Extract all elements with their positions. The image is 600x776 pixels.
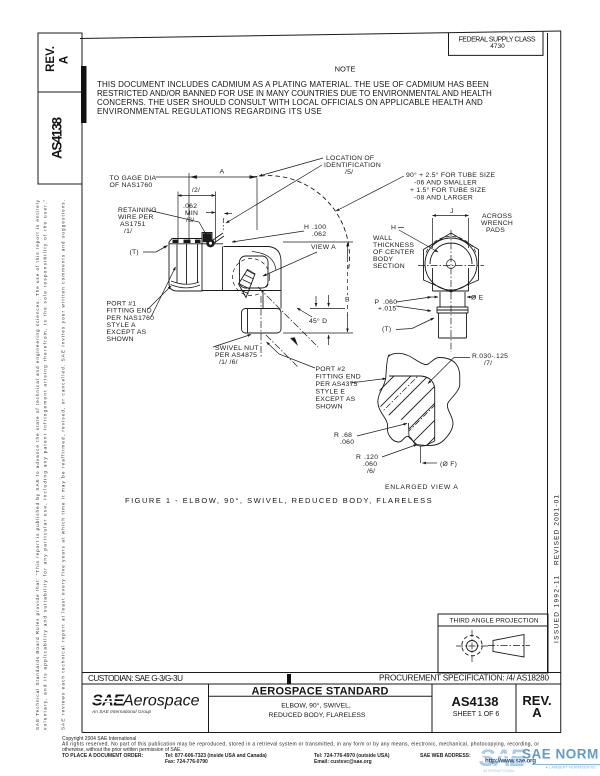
svg-text:4730: 4730 [490,43,505,50]
svg-text:Aerospace: Aerospace [122,693,200,710]
svg-text:BODY: BODY [373,256,393,263]
svg-text:.68: .68 [342,432,352,439]
svg-text:EXCEPT AS: EXCEPT AS [107,329,147,336]
svg-text:/5/: /5/ [345,169,353,176]
svg-text:SECTION: SECTION [373,263,405,270]
svg-text:NOTE: NOTE [335,65,356,74]
svg-text:/2/: /2/ [192,187,200,194]
svg-text:J: J [450,208,454,215]
svg-text:EXCEPT AS: EXCEPT AS [316,396,356,403]
svg-text:/1/ /6/: /1/ /6/ [219,359,238,366]
svg-text:(T): (T) [382,326,391,333]
svg-text:(T): (T) [130,249,139,256]
svg-text:PORT #2: PORT #2 [316,366,346,373]
svg-text:SAE Technical Standards Board: SAE Technical Standards Board Rules prov… [35,199,40,730]
svg-text:ELBOW, 90°, SWIVEL,: ELBOW, 90°, SWIVEL, [281,702,351,710]
svg-text:A: A [59,56,71,64]
svg-text:STYLE A: STYLE A [107,322,137,329]
svg-text:Fax: 724-776-0790: Fax: 724-776-0790 [165,759,208,765]
svg-text:CONCERNS. THE USER SHOULD CON: CONCERNS. THE USER SHOULD CONSULT WITH L… [97,98,483,107]
svg-text:IDENTIFICATION: IDENTIFICATION [324,162,381,169]
svg-text:Email: custsvc@sae.org: Email: custsvc@sae.org [314,759,372,765]
svg-text:.060: .060 [340,439,354,446]
svg-text:/6/: /6/ [367,468,375,475]
svg-text:PER AS4375: PER AS4375 [316,381,358,388]
svg-text:http://www.sae.org: http://www.sae.org [485,758,536,765]
svg-text:AEROSPACE STANDARD: AEROSPACE STANDARD [252,686,389,698]
svg-text:MIN: MIN [185,210,198,217]
svg-text:VIEW A: VIEW A [311,244,336,251]
svg-text:.062: .062 [312,231,326,238]
svg-text:PROCUREMENT SPECIFICATION: /4/: PROCUREMENT SPECIFICATION: /4/ AS18280 [379,674,549,683]
svg-text:H: H [304,224,309,231]
svg-text:WRENCH: WRENCH [481,220,513,227]
svg-text:ACROSS: ACROSS [482,213,512,220]
svg-text:CUSTODIAN: SAE G-3/G-3U: CUSTODIAN: SAE G-3/G-3U [88,674,183,683]
svg-text:B: B [345,297,350,304]
svg-text:TO GAGE DIA: TO GAGE DIA [110,175,157,182]
svg-text:AS4138: AS4138 [50,117,65,159]
svg-text:ENLARGED VIEW A: ENLARGED VIEW A [385,484,458,491]
svg-text:OF NAS1760: OF NAS1760 [110,182,153,189]
svg-text:R: R [334,432,339,439]
svg-text:A: A [532,705,542,720]
svg-text:45° D: 45° D [309,317,327,325]
svg-text:.060: .060 [363,461,377,468]
svg-text:AS4138: AS4138 [452,694,499,709]
svg-text:SAE WEB ADDRESS:: SAE WEB ADDRESS: [420,753,471,759]
svg-text:TO PLACE A DOCUMENT ORDER:: TO PLACE A DOCUMENT ORDER: [62,753,144,759]
svg-text:THIS DOCUMENT INCLUDES CADMIUM: THIS DOCUMENT INCLUDES CADMIUM AS A PLAT… [97,80,489,89]
svg-text:REDUCED BODY, FLARELESS: REDUCED BODY, FLARELESS [269,712,366,719]
svg-text:90° + 2.5° FOR TUBE SIZE: 90° + 2.5° FOR TUBE SIZE [406,171,496,179]
svg-text:WALL: WALL [373,235,392,242]
svg-text:INTERNATIONAL: INTERNATIONAL [483,768,515,773]
svg-text:(Ø F): (Ø F) [440,461,457,468]
svg-text:R.030-.125: R.030-.125 [472,353,508,360]
svg-text:PER NAS1760: PER NAS1760 [107,315,155,322]
svg-text:+ 1.5° FOR TUBE SIZE: + 1.5° FOR TUBE SIZE [410,186,486,194]
svg-text:/1/: /1/ [124,228,132,235]
svg-text:THIRD ANGLE PROJECTION: THIRD ANGLE PROJECTION [450,618,539,625]
svg-text:/7/: /7/ [484,360,492,367]
svg-text:ENVIRONMENTAL REGULATIONS REGA: ENVIRONMENTAL REGULATIONS REGARDING ITS … [97,107,322,116]
svg-text:ISSUED 1992-11: ISSUED 1992-11 [554,576,561,643]
svg-text:OF CENTER: OF CENTER [373,249,415,256]
svg-text:.062: .062 [183,203,197,210]
svg-text:RESTRICTED AND/OR BANNED FOR U: RESTRICTED AND/OR BANNED FOR USE IN MANY… [97,89,492,98]
svg-text:FITTING END: FITTING END [316,374,361,381]
svg-text:SAE reviews each technical rep: SAE reviews each technical report at lea… [61,200,66,730]
svg-text:FITTING END: FITTING END [107,308,152,315]
svg-text:STYLE E: STYLE E [316,389,346,396]
svg-text:.100: .100 [312,224,326,231]
svg-text:.120: .120 [364,454,378,461]
svg-text:WIRE PER: WIRE PER [118,214,154,221]
svg-text:+.015: +.015 [378,306,396,313]
svg-text:SHOWN: SHOWN [316,404,343,411]
svg-text:A: A [220,169,225,176]
svg-text:Ø E: Ø E [471,295,484,302]
svg-text:FIGURE 1 - ELBOW, 90°, SWIVEL,: FIGURE 1 - ELBOW, 90°, SWIVEL, REDUCED B… [125,496,432,505]
svg-text:SHEET 1 OF 6: SHEET 1 OF 6 [453,711,500,718]
svg-text:PORT #1: PORT #1 [107,301,137,308]
svg-text:R: R [356,454,361,461]
svg-text:PADS: PADS [486,227,505,234]
svg-text:SWIVEL NUT: SWIVEL NUT [215,345,259,352]
svg-text:REVISED 2001-01: REVISED 2001-01 [554,495,561,565]
svg-text:voluntary, and its applicabili: voluntary, and its applicability and sui… [43,200,48,730]
svg-text:H: H [391,225,396,232]
svg-text:THICKNESS: THICKNESS [373,242,414,249]
svg-text:LOCATION OF: LOCATION OF [326,155,374,162]
svg-text:SHOWN: SHOWN [107,336,134,343]
svg-text:-06 AND SMALLER: -06 AND SMALLER [414,180,477,187]
svg-text:AS1751: AS1751 [120,221,146,228]
svg-text:PER AS4875: PER AS4875 [215,352,257,359]
svg-text:-08 AND LARGER: -08 AND LARGER [414,195,473,202]
svg-text:REV.: REV. [45,46,57,72]
svg-text:An SAE International Group: An SAE International Group [91,709,152,715]
svg-text:▸ LAMBERT NORMSERVIS: ▸ LAMBERT NORMSERVIS [546,765,596,770]
